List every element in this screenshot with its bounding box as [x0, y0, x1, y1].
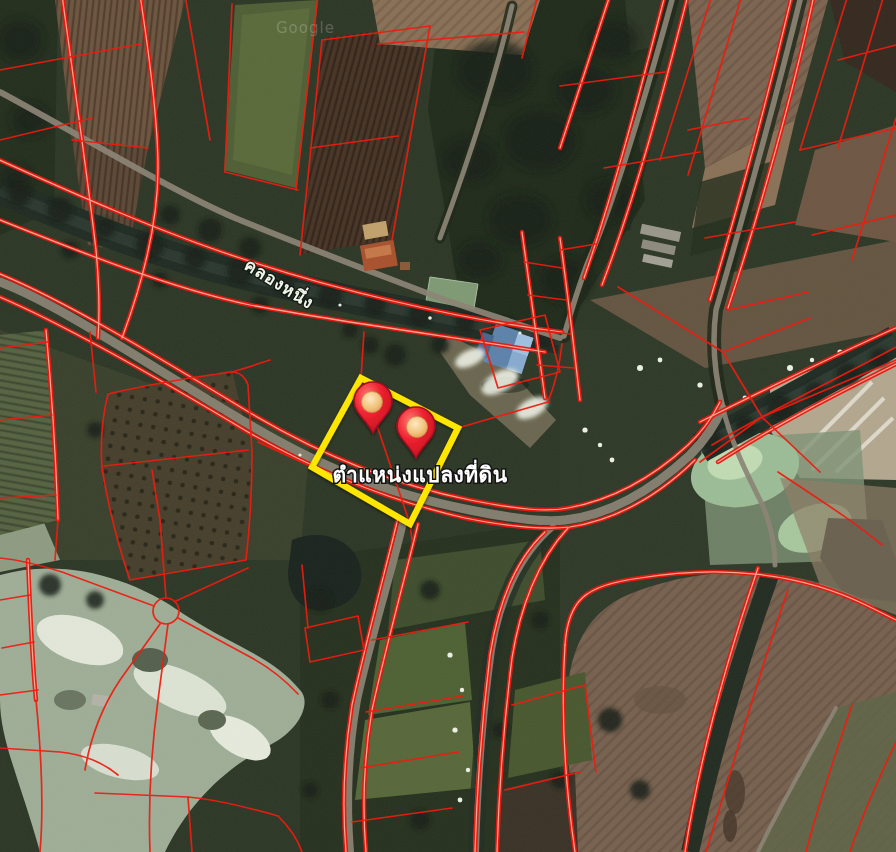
map-canvas[interactable]: คลองหนึ่ง ตำแหน่งแปลงที่ดิน Google — [0, 0, 896, 852]
google-watermark: Google — [276, 19, 335, 37]
satellite-map-view[interactable]: คลองหนึ่ง ตำแหน่งแปลงที่ดิน Google — [0, 0, 896, 852]
pin-center-dot — [362, 392, 383, 413]
pin-center-dot — [407, 417, 428, 438]
parcel-location-label: ตำแหน่งแปลงที่ดิน — [332, 459, 507, 487]
